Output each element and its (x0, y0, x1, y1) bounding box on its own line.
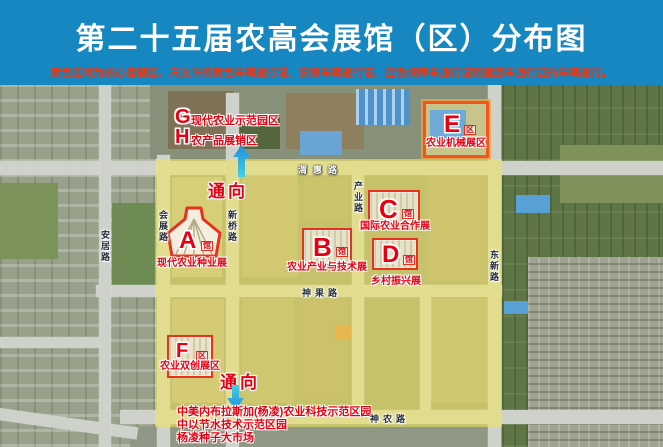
hall-name-c: 国际农业合作展 (357, 217, 433, 232)
road-anju (99, 85, 111, 447)
hall-name-d: 乡村振兴展 (368, 272, 424, 287)
arrow-up-icon (233, 145, 250, 177)
page-subtitle: 黄色区域为核心管制区，只允许持黄色车辆通行证、安保车辆通行证、应急保障车通行证和… (0, 65, 663, 80)
bottom-note-1: 中美内布拉斯加(杨凌)农业科技示范区园 (177, 406, 371, 419)
bottom-note-3: 杨凌种子大市场 (177, 432, 254, 445)
poster-page: 第二十五届农高会展馆（区）分布图 黄色区域为核心管制区，只允许持黄色车辆通行证、… (0, 0, 663, 447)
zone-letter-g: G (175, 107, 191, 127)
road-label-anju: 安居路 (99, 230, 112, 263)
pond (504, 301, 528, 314)
factory-blue-roof (300, 131, 342, 155)
hall-letter-a: A (179, 229, 196, 253)
road-label-shenguo: 神果路 (302, 286, 341, 299)
road-label-xinqiao: 新桥路 (226, 210, 239, 243)
hall-suffix-a: 馆 (201, 241, 213, 251)
bottom-note-2: 中以节水技术示范区园 (177, 419, 287, 432)
road-label-dongxin: 东新路 (488, 250, 501, 283)
road-label-shennong: 神农路 (370, 412, 409, 425)
hall-suffix-d: 馆 (403, 255, 415, 265)
park-block (0, 183, 58, 259)
hall-name-b: 农业产业与技术展 (285, 258, 369, 273)
direction-label-top: 通向 (208, 177, 248, 202)
hall-name-e: 农业机械展区 (424, 134, 488, 149)
pond (516, 195, 550, 213)
header-banner: 第二十五届农高会展馆（区）分布图 黄色区域为核心管制区，只允许持黄色车辆通行证、… (0, 0, 663, 85)
road-label-weihui: 渭惠路 (298, 163, 343, 176)
hall-name-f: 农业双创展区 (158, 357, 222, 372)
hall-name-a: 现代农业种业展 (152, 254, 232, 269)
road-label-chanye: 产业路 (352, 181, 365, 214)
hall-suffix-b: 馆 (336, 247, 348, 257)
road-label-huizhan: 会展路 (157, 210, 170, 243)
zone-name-g: 现代农业示范园区 (191, 112, 279, 128)
map-canvas: A 馆 B 馆 C 馆 D 馆 E 区 F 区 现代农业种业展 农业产业与技术展… (0, 85, 663, 447)
park-block (112, 203, 156, 295)
zone-letter-h: H (175, 127, 189, 147)
page-title: 第二十五届农高会展馆（区）分布图 (0, 14, 663, 58)
factory-blue-roof (356, 89, 410, 125)
road-left-spur (0, 337, 100, 348)
hall-letter-d: D (382, 243, 399, 267)
hall-letter-b: B (313, 234, 332, 260)
